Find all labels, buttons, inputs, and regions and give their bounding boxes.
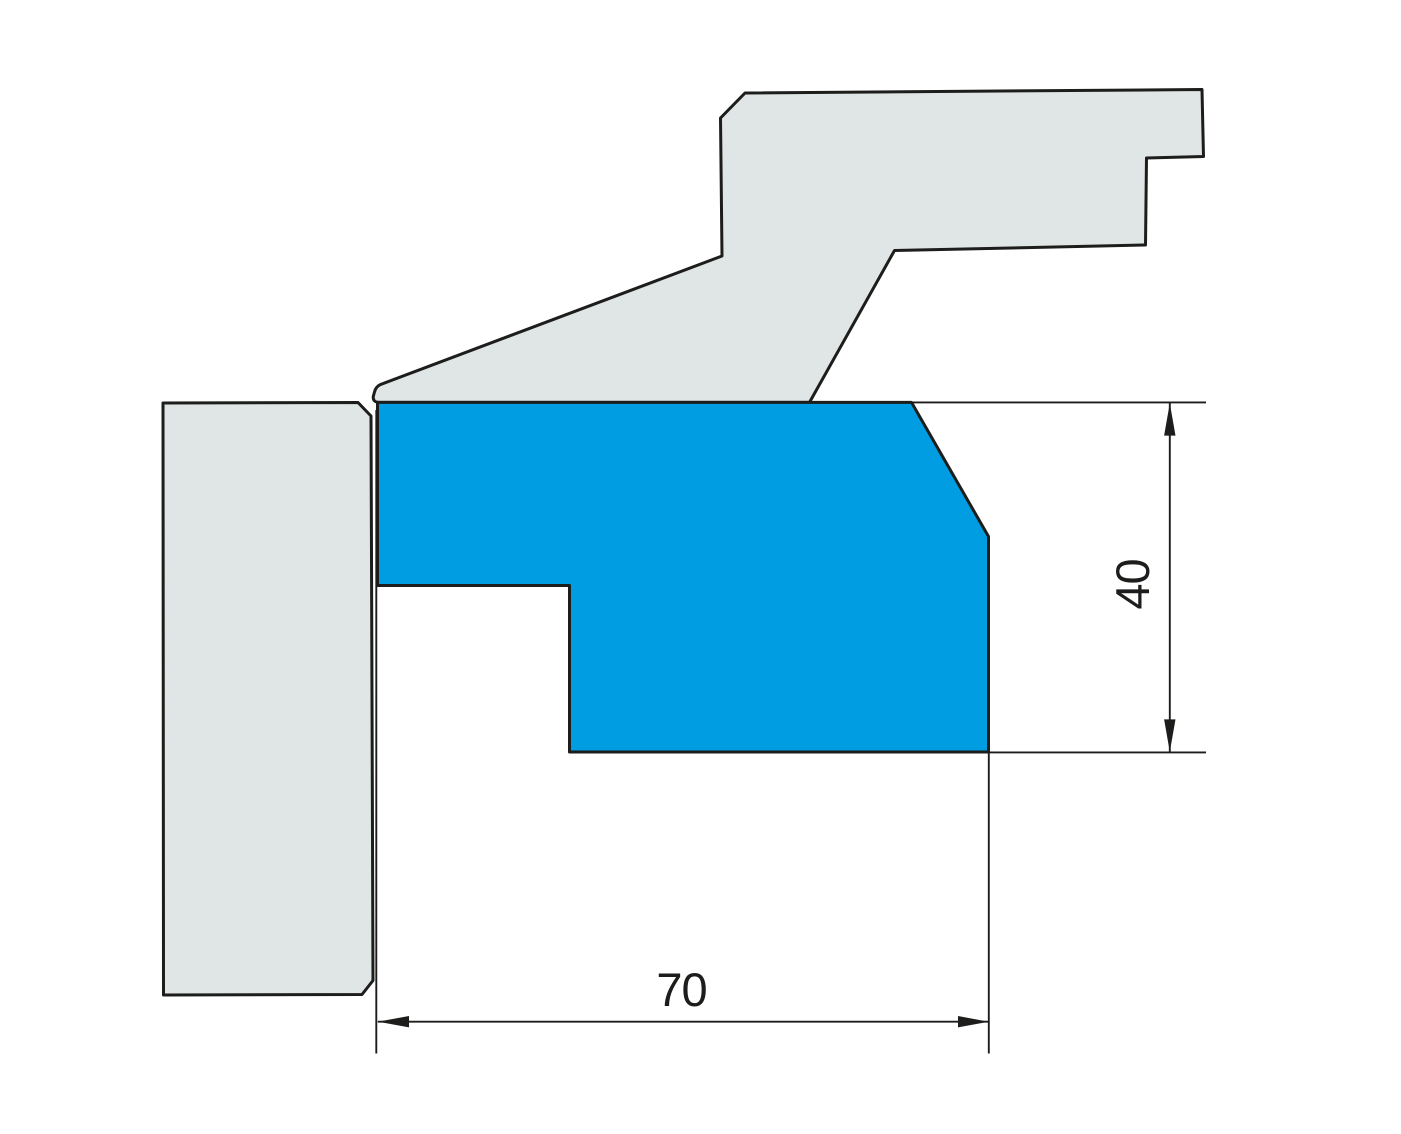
svg-text:40: 40 [1106,559,1159,609]
svg-text:70: 70 [656,963,706,1016]
